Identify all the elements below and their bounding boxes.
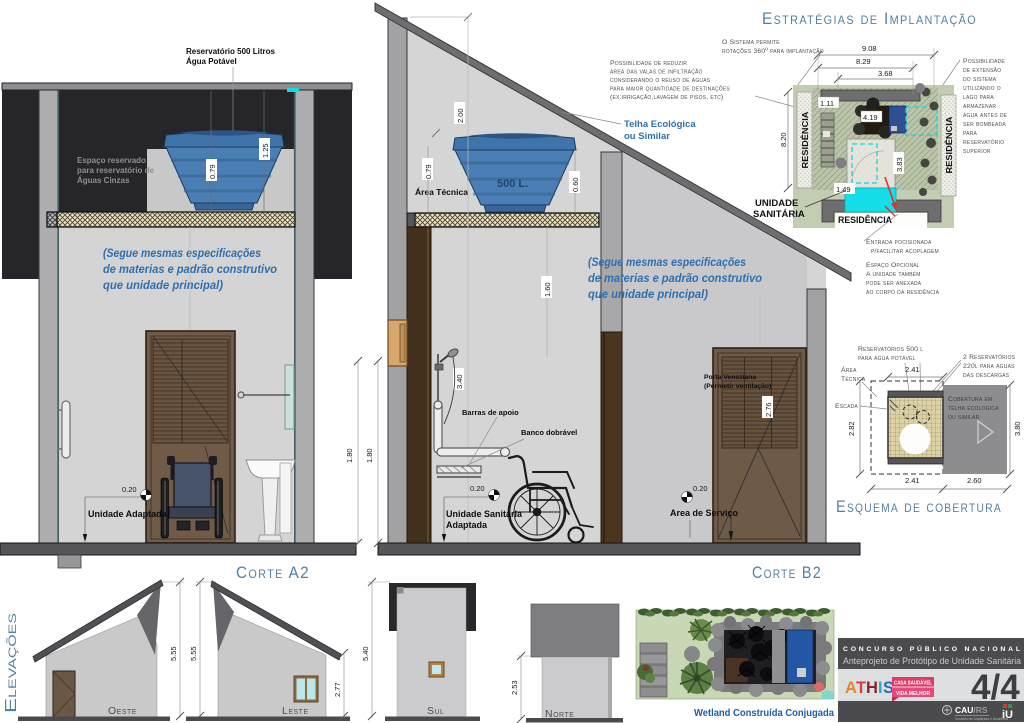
svg-text:CONCURSO PÚBLICO NACIONAL: CONCURSO PÚBLICO NACIONAL	[843, 644, 1020, 653]
svg-text:1.25: 1.25	[261, 143, 270, 158]
svg-text:Elevações: Elevações	[3, 613, 20, 713]
svg-text:ao corpo da residência: ao corpo da residência	[866, 288, 940, 296]
svg-text:Área: Área	[841, 365, 857, 374]
svg-text:1.49: 1.49	[836, 185, 851, 194]
svg-text:2.00: 2.00	[456, 108, 465, 123]
svg-text:T: T	[856, 679, 866, 697]
svg-text:8.29: 8.29	[856, 57, 871, 66]
svg-text:1.60: 1.60	[543, 282, 552, 297]
svg-text:área das valas de infiltração: área das valas de infiltração	[610, 69, 703, 76]
svg-text:Área Técnica: Área Técnica	[415, 187, 468, 197]
svg-text:2.76: 2.76	[764, 402, 773, 417]
svg-text:Espaço Opcional: Espaço Opcional	[866, 262, 920, 269]
svg-text:para água potável: para água potável	[858, 355, 916, 362]
svg-text:que unidade principal): que unidade principal)	[103, 280, 223, 292]
svg-text:0.79: 0.79	[424, 164, 433, 179]
svg-text:para reservatório de: para reservatório de	[77, 166, 154, 175]
svg-text:1.80: 1.80	[365, 448, 374, 463]
svg-text:Espaço reservado: Espaço reservado	[77, 156, 146, 165]
svg-text:(Permetir ventilação): (Permetir ventilação)	[704, 383, 771, 390]
svg-text:2.41: 2.41	[905, 365, 920, 374]
svg-text:220l para águas: 220l para águas	[963, 363, 1015, 370]
svg-text:Adaptada: Adaptada	[446, 520, 488, 530]
svg-text:Telha Ecológica: Telha Ecológica	[624, 119, 696, 130]
svg-text:Wetland Construída Conjugada: Wetland Construída Conjugada	[694, 707, 834, 719]
svg-text:iU: iU	[1002, 709, 1013, 721]
svg-text:H: H	[866, 679, 878, 697]
svg-text:3.80: 3.80	[1013, 421, 1022, 436]
svg-text:O Sistema permite: O Sistema permite	[722, 39, 780, 46]
svg-text:Porta Veneziana: Porta Veneziana	[704, 374, 756, 381]
svg-text:Banco dobrável: Banco dobrável	[521, 428, 577, 437]
svg-text:Leste: Leste	[282, 705, 309, 717]
svg-text:telha ecologica: telha ecologica	[948, 405, 999, 412]
svg-text:5.55: 5.55	[189, 646, 198, 661]
svg-text:Area de Serviço: Area de Serviço	[670, 508, 739, 518]
svg-text:SANITÁRIA: SANITÁRIA	[753, 209, 805, 220]
svg-text:500 L.: 500 L.	[497, 178, 528, 190]
svg-text:VIDA MELHOR: VIDA MELHOR	[896, 691, 930, 697]
svg-text:rotações 360º para implantação: rotações 360º para implantação	[722, 48, 824, 55]
svg-text:8.20: 8.20	[779, 132, 788, 147]
svg-text:UNIDADE: UNIDADE	[755, 198, 798, 209]
svg-text:que unidade principal): que unidade principal)	[588, 289, 708, 301]
svg-text:para maior quantidade de desti: para maior quantidade de destinações	[610, 86, 730, 93]
svg-text:(ex:irrigação,lavagem de pisos: (ex:irrigação,lavagem de pisos, etc)	[610, 94, 723, 101]
svg-text:0.20: 0.20	[470, 484, 485, 493]
svg-text:Barras de apoio: Barras de apoio	[462, 408, 519, 417]
svg-text:p/facilitar acoplagem: p/facilitar acoplagem	[871, 248, 939, 255]
svg-text:1.80: 1.80	[345, 448, 354, 463]
svg-text:2.60: 2.60	[967, 476, 982, 485]
svg-text:das descargas: das descargas	[963, 372, 1010, 379]
svg-text:água antes de: água antes de	[963, 112, 1008, 119]
svg-text:ou similar: ou similar	[948, 414, 980, 421]
svg-text:0.60: 0.60	[571, 177, 580, 192]
svg-text:3.40: 3.40	[455, 374, 464, 389]
svg-text:Escada: Escada	[835, 403, 858, 410]
svg-text:CAU/RS: CAU/RS	[955, 705, 988, 715]
svg-text:Norte: Norte	[545, 708, 574, 720]
svg-text:0.20: 0.20	[122, 485, 137, 494]
svg-text:ser bombeada: ser bombeada	[963, 121, 1006, 128]
svg-text:Esquema de cobertura: Esquema de cobertura	[836, 497, 1002, 516]
svg-text:Conselho de Arquitetura e Urba: Conselho de Arquitetura e Urbanismo	[955, 717, 1008, 721]
svg-text:4.19: 4.19	[863, 113, 878, 122]
svg-text:pode ser anexada: pode ser anexada	[866, 280, 922, 287]
svg-text:Unidade Sanitária: Unidade Sanitária	[446, 509, 523, 519]
svg-text:A unidade também: A unidade também	[866, 271, 921, 278]
svg-text:RESIDÊNCIA: RESIDÊNCIA	[799, 112, 810, 169]
svg-text:2 Reservatórios: 2 Reservatórios	[963, 354, 1016, 361]
svg-text:Unidade Adaptada: Unidade Adaptada	[88, 509, 168, 519]
svg-text:para: para	[963, 130, 978, 137]
svg-text:Sul: Sul	[427, 705, 444, 717]
svg-text:reservatório: reservatório	[963, 139, 1004, 146]
svg-text:Estratégias de Implantação: Estratégias de Implantação	[762, 9, 977, 28]
svg-text:1.11: 1.11	[820, 99, 834, 108]
svg-text:Oeste: Oeste	[108, 705, 137, 717]
svg-text:5.40: 5.40	[361, 646, 370, 661]
svg-text:I: I	[878, 679, 883, 697]
svg-text:Possibilidade de reduzir: Possibilidade de reduzir	[610, 60, 687, 67]
svg-text:Reservatórios 500 l: Reservatórios 500 l	[858, 346, 923, 353]
svg-text:Água Potável: Água Potável	[186, 57, 237, 66]
svg-text:Reservatório 500 Litros: Reservatório 500 Litros	[186, 47, 275, 56]
svg-text:2.82: 2.82	[847, 421, 856, 436]
svg-text:2.41: 2.41	[905, 476, 920, 485]
svg-text:9.08: 9.08	[862, 44, 877, 53]
svg-text:utilizando o: utilizando o	[963, 85, 1001, 92]
svg-text:de materias e padrão construti: de materias e padrão construtivo	[588, 273, 762, 285]
svg-text:considerando o reuso de águas: considerando o reuso de águas	[610, 77, 711, 84]
svg-text:superior: superior	[963, 148, 991, 155]
svg-text:2.77: 2.77	[333, 682, 342, 697]
svg-text:0.20: 0.20	[693, 484, 708, 493]
svg-text:Águas Cinzas: Águas Cinzas	[77, 176, 130, 185]
svg-text:0.79: 0.79	[208, 164, 217, 179]
svg-text:lago para: lago para	[963, 94, 994, 101]
svg-text:Corte B2: Corte B2	[752, 563, 822, 582]
svg-text:RESIDÊNCIA: RESIDÊNCIA	[943, 117, 954, 174]
svg-text:Possibilidade: Possibilidade	[963, 58, 1005, 65]
svg-text:Entrada pocisionada: Entrada pocisionada	[866, 239, 932, 246]
svg-text:RESIDÊNCIA: RESIDÊNCIA	[838, 214, 892, 225]
svg-text:de extensão: de extensão	[963, 67, 1001, 74]
svg-text:ou Similar: ou Similar	[624, 131, 670, 142]
svg-text:armazenar: armazenar	[963, 103, 996, 110]
svg-text:5.55: 5.55	[169, 646, 178, 661]
svg-text:Anteprojeto de Protótipo de Un: Anteprojeto de Protótipo de Unidade Sani…	[843, 656, 1022, 666]
svg-text:3.83: 3.83	[895, 157, 904, 172]
svg-text:do sistema: do sistema	[963, 76, 997, 83]
svg-text:Corte A2: Corte A2	[236, 563, 310, 582]
svg-text:Cobertura em: Cobertura em	[948, 396, 992, 403]
svg-text:2.53: 2.53	[510, 680, 519, 695]
svg-text:(Segue mesmas especificações: (Segue mesmas especificações	[588, 257, 746, 269]
svg-text:3.68: 3.68	[878, 69, 893, 78]
svg-text:(Segue mesmas especificações: (Segue mesmas especificações	[103, 248, 261, 260]
svg-text:CASA SAUDÁVEL: CASA SAUDÁVEL	[894, 680, 933, 687]
